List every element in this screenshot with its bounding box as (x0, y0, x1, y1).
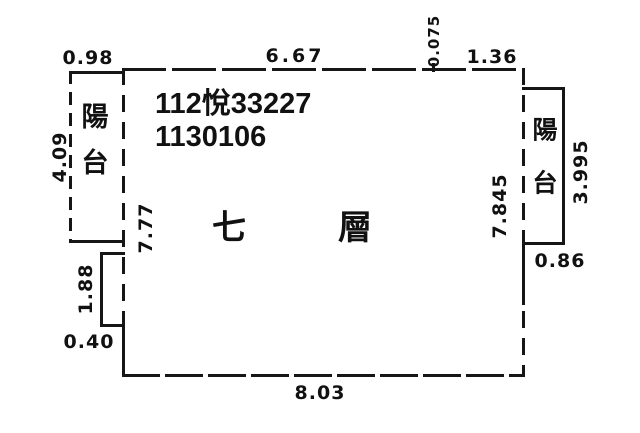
dimension-interior-left-height: 7.77 (135, 203, 157, 254)
dimension-balcony-left-height: 4.09 (49, 132, 71, 183)
stamp-date: 1130106 (155, 121, 311, 154)
right-balcony-bottom-wall (522, 242, 565, 245)
dimension-top-right-width: 1.36 (467, 46, 518, 68)
dimension-top-width: 6.67 (266, 45, 325, 67)
left-balcony-label: 陽台 (81, 95, 109, 187)
notch-top-wall (100, 252, 125, 255)
floor-level-label: 七層 (212, 200, 464, 249)
main-room-bottom-wall (122, 374, 525, 377)
registry-stamp: 112悅33227 1130106 (155, 88, 311, 154)
dimension-notch-height: 1.88 (75, 264, 97, 315)
right-wall-lower-solid (522, 245, 525, 305)
floor-plan: 0.98 6.67 0.075 1.36 4.09 7.77 1.88 0.40… (0, 0, 640, 433)
dimension-bottom-width: 8.03 (295, 382, 346, 404)
dimension-balcony-right-height: 3.995 (570, 139, 592, 204)
dimension-interior-right-height: 7.845 (489, 173, 511, 238)
dimension-balcony-left-width: 0.98 (63, 47, 114, 69)
left-wall-lower-solid (122, 324, 125, 377)
dimension-top-offset: 0.075 (425, 15, 443, 67)
notch-bottom-wall (100, 324, 125, 327)
dimension-balcony-right-width: 0.86 (535, 250, 586, 272)
stamp-case-number: 112悅33227 (155, 88, 311, 121)
left-balcony-top-wall (69, 71, 125, 74)
notch-left-wall (100, 252, 103, 327)
right-balcony-label: 陽台 (532, 105, 558, 210)
dimension-notch-width: 0.40 (64, 331, 115, 353)
right-balcony-right-wall (562, 87, 565, 245)
main-room-top-wall (122, 68, 525, 71)
main-room-right-wall (522, 68, 525, 377)
left-balcony-bottom-wall (69, 240, 125, 243)
right-balcony-top-wall (522, 87, 565, 90)
